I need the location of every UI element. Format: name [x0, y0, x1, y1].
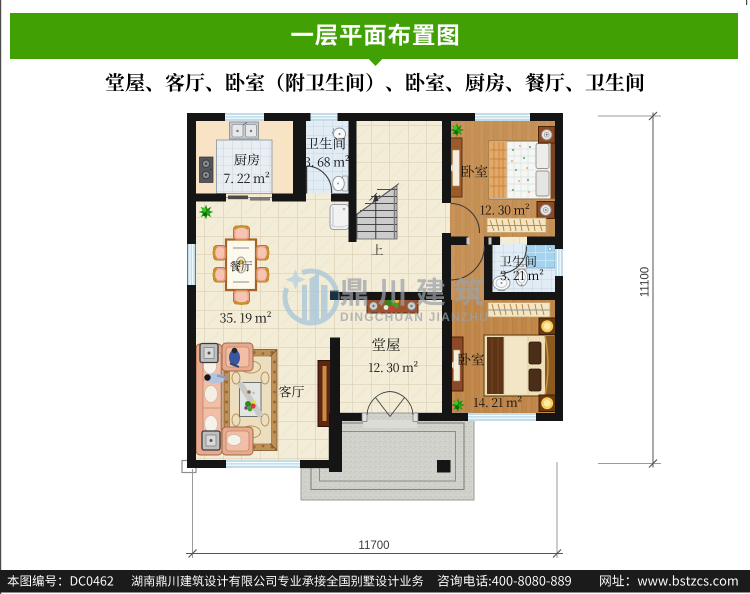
svg-text:11100: 11100	[640, 267, 652, 297]
svg-text:11700: 11700	[358, 540, 389, 552]
svg-text:DINGCHUAN JIANZHU: DINGCHUAN JIANZHU	[340, 310, 489, 324]
